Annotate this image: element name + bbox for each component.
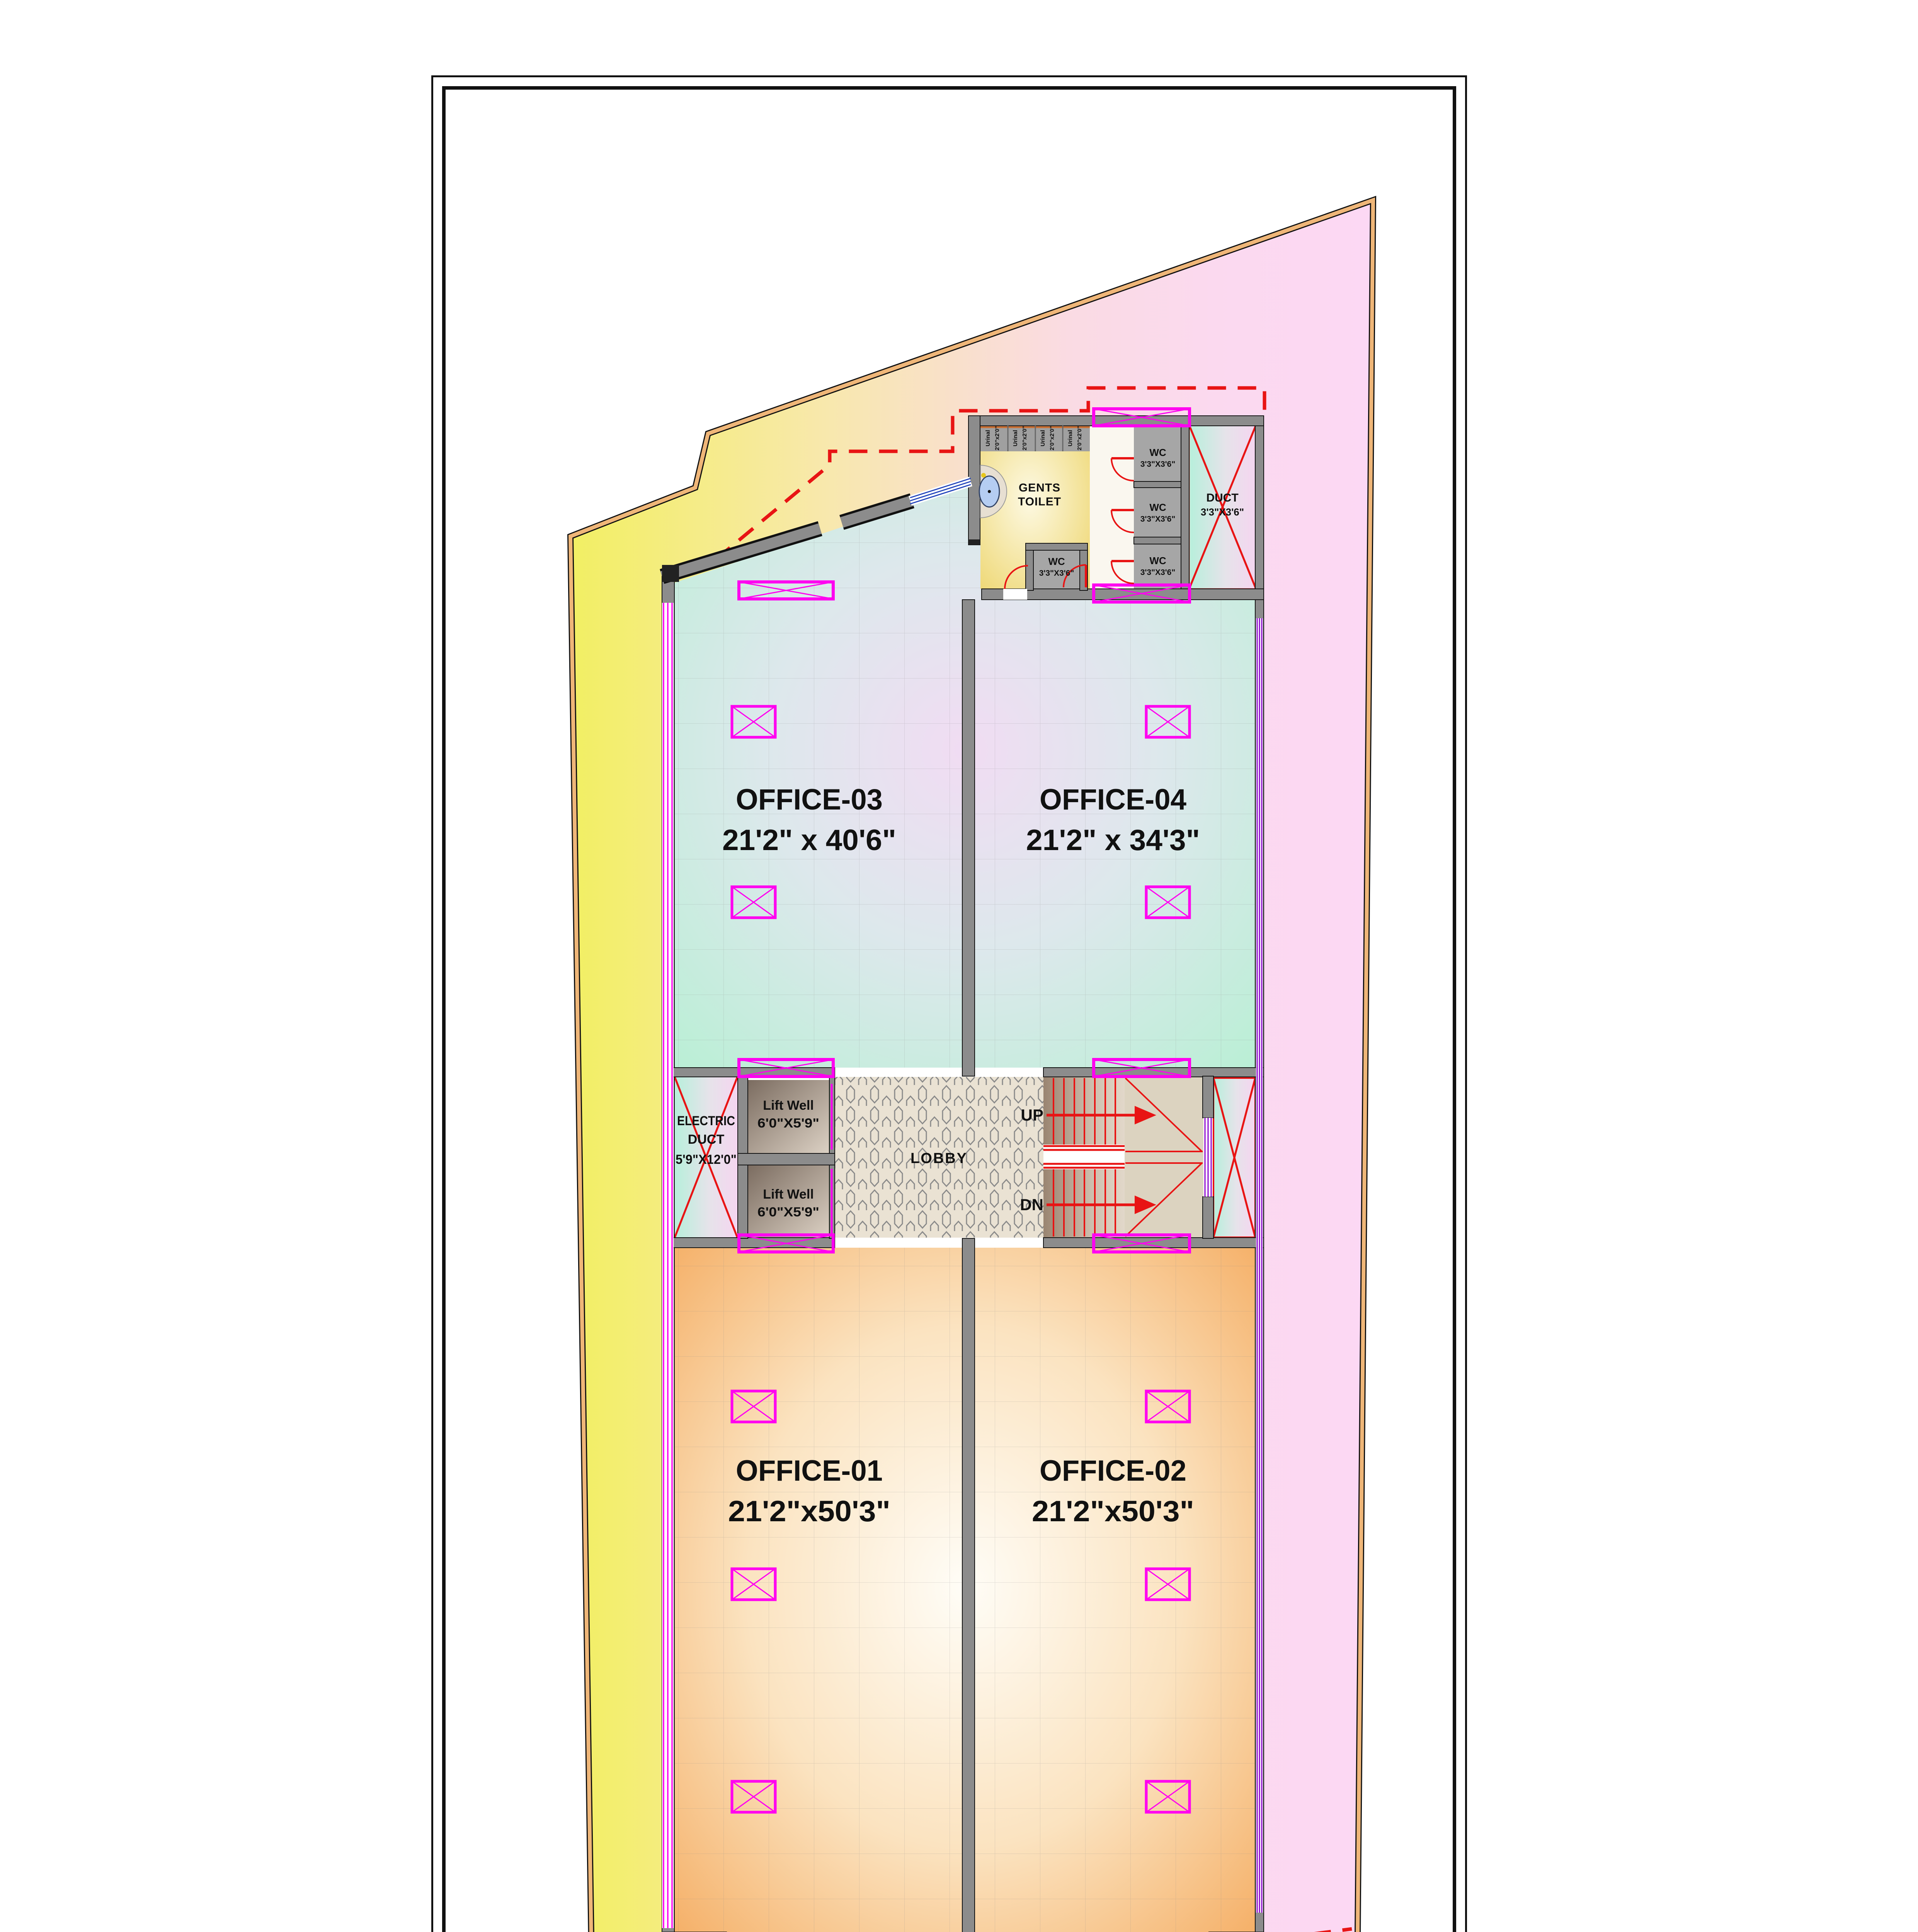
drawing-sheet: OFFICE-03 21'2" x 40'6" OFFICE-04 21'2" … — [0, 0, 1918, 1932]
sheet-inner-border — [442, 86, 1456, 1932]
